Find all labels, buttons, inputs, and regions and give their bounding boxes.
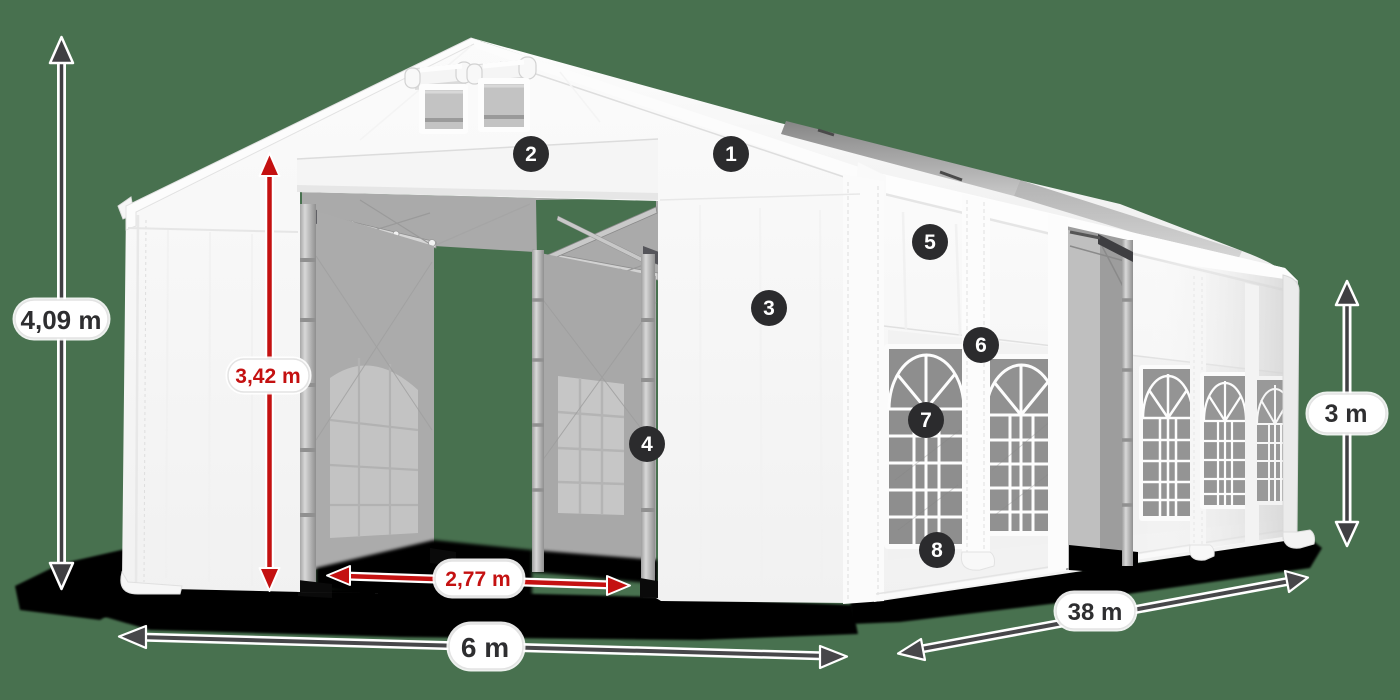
- svg-text:6: 6: [975, 334, 987, 357]
- svg-text:4: 4: [641, 433, 653, 456]
- svg-text:2,77 m: 2,77 m: [445, 568, 510, 591]
- svg-text:3,42 m: 3,42 m: [235, 365, 300, 388]
- svg-text:4,09 m: 4,09 m: [21, 305, 102, 335]
- svg-text:1: 1: [725, 143, 737, 166]
- svg-text:7: 7: [920, 409, 932, 432]
- svg-text:3: 3: [763, 297, 775, 320]
- svg-text:2: 2: [525, 143, 537, 166]
- svg-text:3 m: 3 m: [1324, 400, 1367, 428]
- svg-text:6 m: 6 m: [461, 632, 509, 663]
- svg-text:5: 5: [924, 231, 936, 254]
- svg-text:8: 8: [931, 539, 943, 562]
- svg-text:38 m: 38 m: [1068, 599, 1123, 626]
